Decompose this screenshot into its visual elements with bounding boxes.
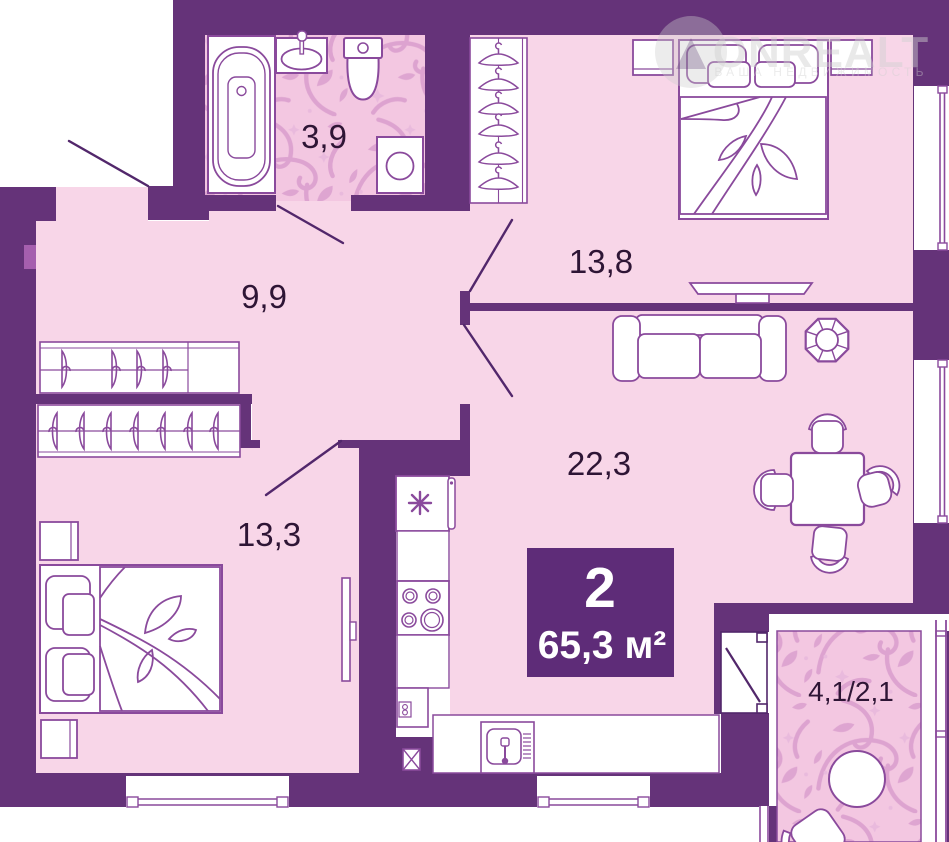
svg-text:2: 2: [584, 556, 616, 620]
svg-text:4,1/2,1: 4,1/2,1: [808, 676, 894, 707]
svg-text:22,3: 22,3: [567, 445, 631, 482]
svg-text:3,9: 3,9: [301, 118, 347, 155]
svg-text:ВАША НЕДВИЖИМОСТЬ: ВАША НЕДВИЖИМОСТЬ: [714, 65, 927, 79]
svg-text:13,8: 13,8: [569, 243, 633, 280]
svg-text:13,3: 13,3: [237, 516, 301, 553]
svg-text:9,9: 9,9: [241, 278, 287, 315]
svg-text:65,3 м²: 65,3 м²: [538, 624, 667, 667]
